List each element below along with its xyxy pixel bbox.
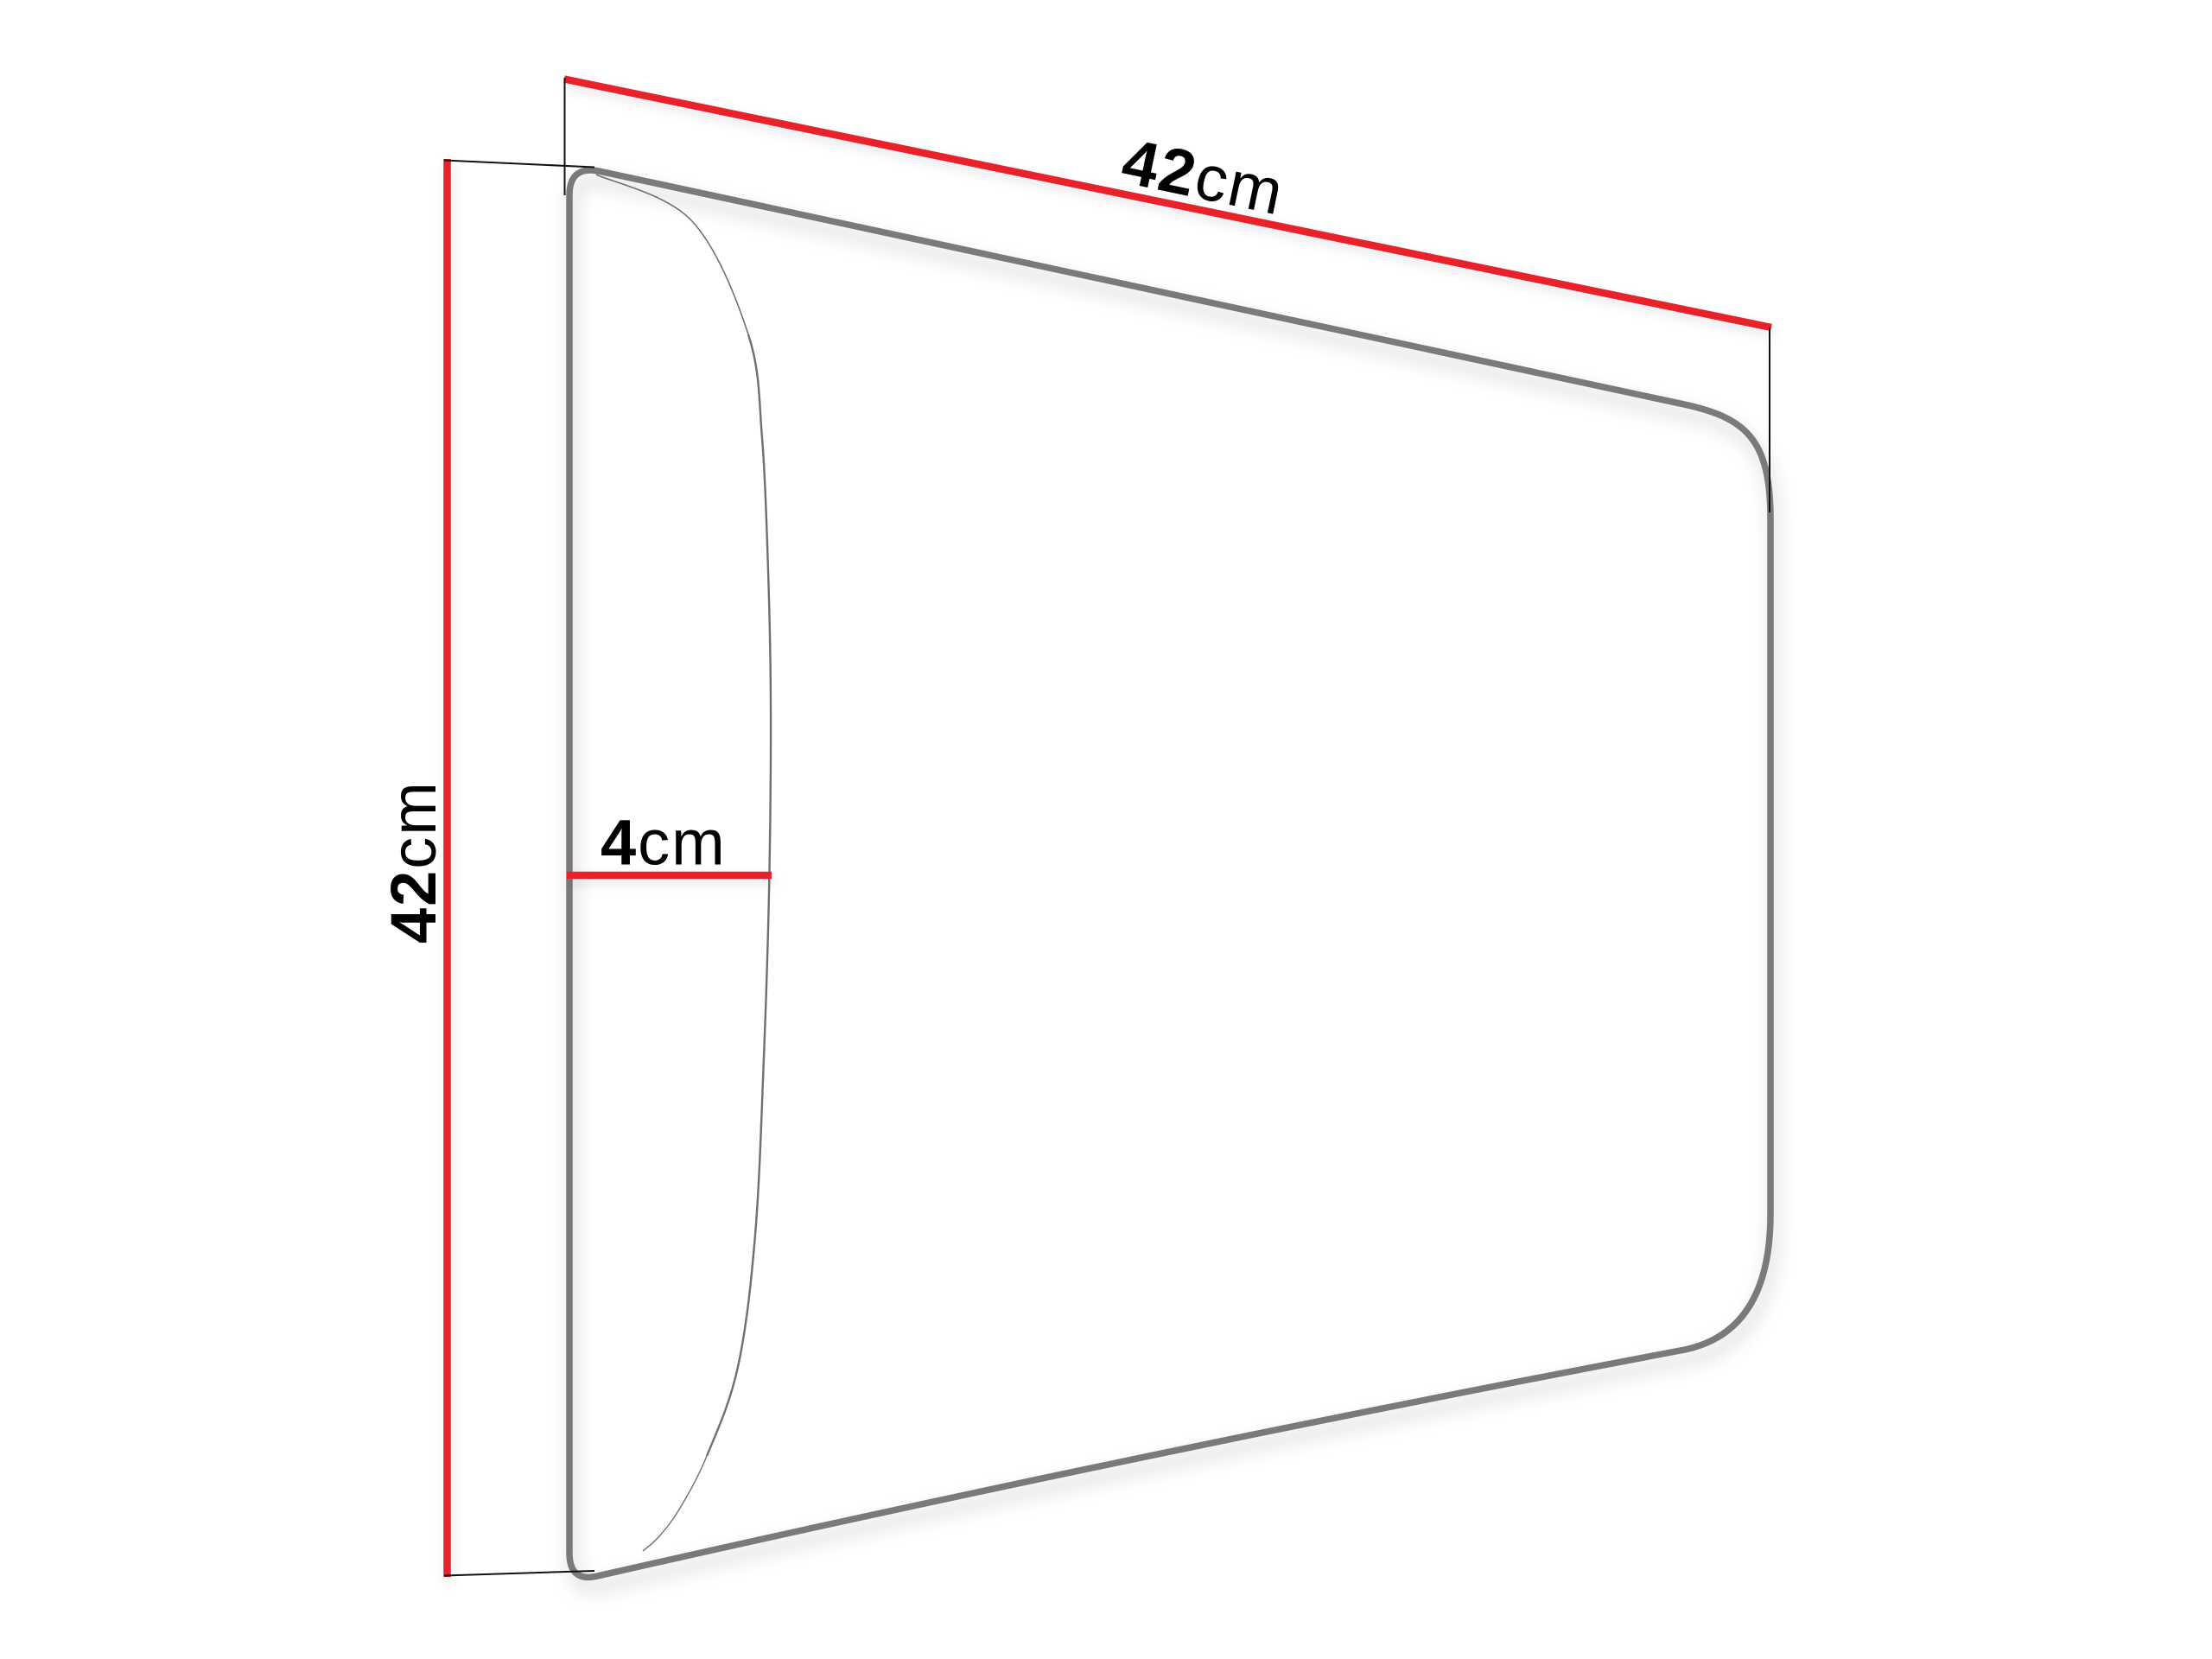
- svg-text:42cm: 42cm: [378, 780, 449, 944]
- svg-text:4cm: 4cm: [601, 807, 727, 879]
